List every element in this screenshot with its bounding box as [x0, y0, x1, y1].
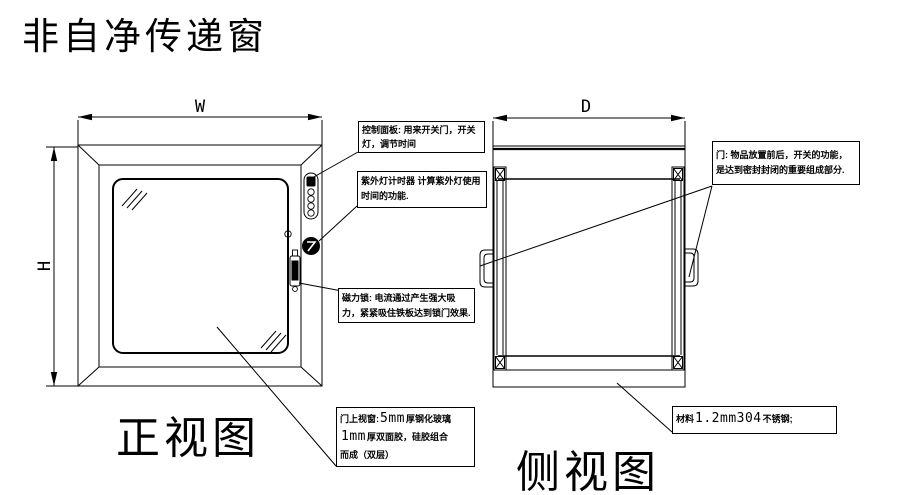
door-window-tail-text: 而成（双层） [340, 450, 394, 460]
left-door-edge [494, 167, 506, 370]
dimension-width: W [78, 97, 322, 146]
bevel-top-right [301, 145, 322, 165]
dim-label-d: D [581, 97, 591, 117]
left-door-handle [480, 250, 494, 287]
side-view-body [480, 146, 698, 387]
glass-hatch-top-left-icon [122, 189, 147, 210]
door-window-glass-text: 厚钢化玻璃 [406, 414, 451, 424]
callout-door-window-line1: 门上视窗:5mm厚钢化玻璃 [340, 410, 471, 428]
page-title: 非自净传递窗 [22, 6, 268, 60]
front-view-label: 正视图 [116, 402, 260, 466]
door-window-tape-text: 厚双面胶，硅胶组合 [367, 432, 448, 442]
door-window-tape-thickness: 1mm [340, 429, 367, 444]
callout-magnetic-lock: 磁力锁: 电流通过产生强大吸力，紧紧吸住铁板达到锁门效果. [338, 288, 475, 323]
callout-magnetic-lock-text: 磁力锁: 电流通过产生强大吸力，紧紧吸住铁板达到锁门效果. [342, 293, 471, 318]
drawing-canvas: W H D [0, 0, 908, 495]
uv-timer-knob [303, 238, 320, 255]
bevel-bottom-left [78, 367, 99, 386]
callout-door-text: 门: 物品放置前后，开关的功能，是达到密封封闭的重要组成部分. [716, 150, 848, 175]
leader-door-left [480, 186, 712, 266]
dimension-height: H [35, 147, 78, 386]
control-panel [304, 173, 318, 219]
leader-uv-timer [319, 206, 357, 241]
bevel-bottom-right [301, 367, 322, 386]
door-glass-window [113, 179, 288, 353]
dim-label-w: W [195, 97, 206, 117]
material-prefix: 材料 [676, 414, 694, 424]
callout-control-panel-text: 控制面板: 用来开关门，开关灯，调节时间 [362, 125, 476, 149]
material-spec: 1.2mm304 [694, 411, 763, 426]
dimension-depth: D [493, 97, 685, 146]
dim-label-h: H [35, 261, 55, 271]
glass-hatch-bottom-right-icon [261, 331, 286, 352]
leader-door-right [689, 186, 712, 277]
front-view-body [78, 145, 322, 386]
callout-material: 材料1.2mm304不锈钢; [672, 406, 837, 434]
magnetic-lock [290, 250, 300, 291]
side-view-label: 侧视图 [516, 436, 660, 495]
door-window-label: 门上视窗: [340, 414, 379, 424]
side-outer-frame [493, 146, 685, 387]
callout-control-panel: 控制面板: 用来开关门，开关灯，调节时间 [358, 121, 485, 153]
leader-control-panel [312, 152, 358, 178]
bevel-top-left [78, 145, 99, 165]
callout-uv-timer: 紫外灯计时器 计算紫外灯使用时间的功能. [357, 171, 487, 208]
callout-door-window-line2: 1mm厚双面胶，硅胶组合 [340, 428, 471, 446]
callout-uv-timer-text: 紫外灯计时器 计算紫外灯使用时间的功能. [361, 176, 481, 201]
callout-door: 门: 物品放置前后，开关的功能，是达到密封封闭的重要组成部分. [712, 141, 860, 185]
callout-door-window-line3: 而成（双层） [340, 446, 471, 464]
leader-magnetic-lock [299, 283, 342, 291]
leader-material [617, 383, 672, 432]
material-suffix: 不锈钢; [763, 414, 793, 424]
door-window-glass-thickness: 5mm [379, 411, 406, 426]
callout-door-window: 门上视窗:5mm厚钢化玻璃 1mm厚双面胶，硅胶组合 而成（双层） [336, 407, 475, 467]
